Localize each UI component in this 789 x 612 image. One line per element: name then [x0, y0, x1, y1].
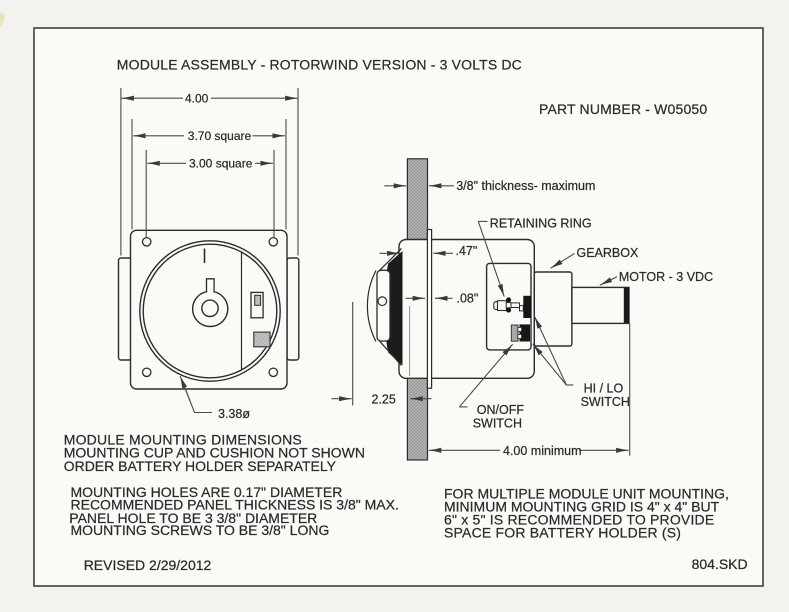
svg-text:ON/OFF: ON/OFF [477, 403, 525, 417]
svg-text:SWITCH: SWITCH [473, 417, 522, 431]
svg-text:ORDER BATTERY HOLDER SEPARATEL: ORDER BATTERY HOLDER SEPARATELY [64, 458, 337, 474]
svg-text:804.SKD: 804.SKD [692, 556, 748, 572]
svg-text:3/8" thickness- maximum: 3/8" thickness- maximum [456, 179, 595, 193]
svg-text:HI / LO: HI / LO [584, 382, 624, 396]
svg-text:4.00 minimum: 4.00 minimum [503, 444, 582, 458]
svg-text:3.00 square: 3.00 square [189, 157, 253, 171]
svg-text:SWITCH: SWITCH [581, 395, 630, 409]
svg-text:.08": .08" [457, 292, 479, 306]
svg-text:3.70 square: 3.70 square [188, 129, 252, 143]
svg-text:SPACE FOR BATTERY HOLDER (S): SPACE FOR BATTERY HOLDER (S) [444, 525, 681, 541]
svg-text:GEARBOX: GEARBOX [577, 246, 639, 260]
svg-text:3.38ø: 3.38ø [218, 407, 250, 421]
svg-text:MOTOR - 3 VDC: MOTOR - 3 VDC [619, 270, 713, 284]
svg-text:4.00: 4.00 [185, 91, 209, 105]
svg-text:PART NUMBER - W05050: PART NUMBER - W05050 [539, 101, 707, 117]
svg-text:2.25: 2.25 [372, 393, 396, 407]
svg-text:.47": .47" [456, 244, 478, 258]
svg-text:RETAINING RING: RETAINING RING [490, 216, 592, 230]
svg-text:MODULE ASSEMBLY - ROTORWIND VE: MODULE ASSEMBLY - ROTORWIND VERSION - 3 … [117, 56, 522, 72]
svg-text:MOUNTING SCREWS TO BE 3/8" LON: MOUNTING SCREWS TO BE 3/8" LONG [71, 522, 330, 538]
svg-text:REVISED 2/29/2012: REVISED 2/29/2012 [84, 557, 212, 573]
